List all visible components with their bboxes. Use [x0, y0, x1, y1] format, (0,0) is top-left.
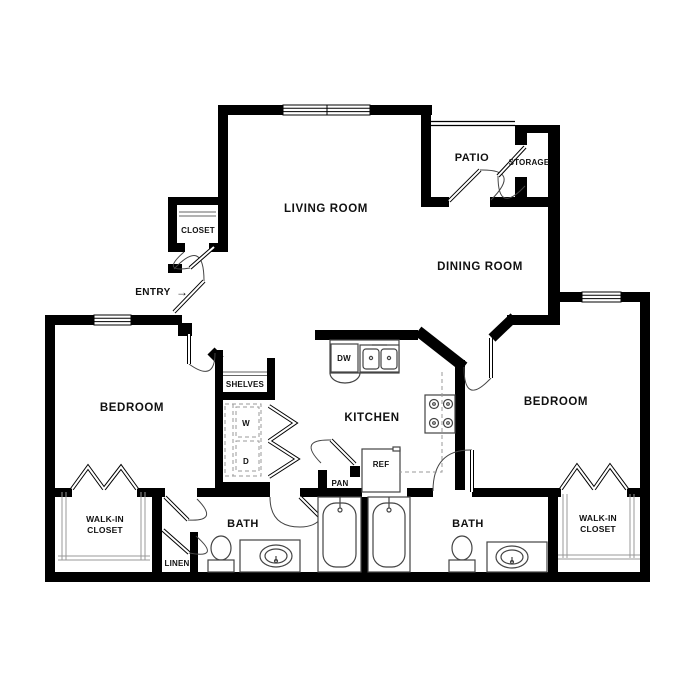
vanity-right [487, 542, 547, 572]
wall-hall-pan [300, 488, 318, 497]
shelves-label: SHELVES [226, 380, 265, 389]
wall-shelves-bottom [215, 392, 275, 400]
wall-patio-left [421, 105, 431, 207]
wall-patio-bottom-left [421, 197, 449, 207]
wall-storage-left-lower [515, 177, 527, 207]
wall-pantry-bottom [318, 488, 362, 497]
entry-closet-rod [179, 212, 216, 216]
dishwasher-label: DW [337, 354, 351, 363]
wall-linen-right [190, 532, 198, 572]
wall-hall-bath1 [197, 488, 265, 497]
patio-label: PATIO [455, 152, 489, 164]
storage-label: STORAGE [509, 158, 550, 167]
bath-right-label: BATH [452, 518, 484, 530]
kitchen-sink [360, 345, 399, 372]
wall-bedroom2-bottom-left [472, 488, 561, 497]
wall-storage-left-upper [515, 126, 527, 145]
patio-railing [431, 122, 515, 126]
dryer-label: D [243, 457, 249, 466]
refrigerator [362, 447, 400, 492]
bedroom-left-label: BEDROOM [100, 402, 164, 414]
storage-door [498, 147, 525, 198]
wall-entry-closet-left [168, 197, 177, 252]
shelves-lines [223, 372, 267, 376]
wall-bath2-closet2 [548, 488, 558, 572]
dining-room-label: DINING ROOM [437, 261, 523, 273]
stove [425, 395, 455, 433]
wall-closet-jamb-left [177, 243, 185, 252]
window-bedroom-left [94, 315, 131, 325]
wall-living-left [218, 105, 228, 200]
wall-living-top-left [218, 105, 285, 115]
entry-closet-label: CLOSET [181, 226, 215, 235]
toilet-right [449, 536, 475, 572]
floor-plan-canvas: LIVING ROOM DINING ROOM KITCHEN BEDROOM … [0, 0, 697, 697]
laundry-bifold [269, 406, 297, 477]
wall-right-outer [640, 292, 650, 582]
counter-round-end [330, 373, 360, 383]
bath-left-door-bedroom [165, 497, 207, 520]
pantry-label: PAN [332, 479, 349, 488]
entry-label: ENTRY [135, 287, 171, 298]
toilet-left [208, 536, 234, 572]
wall-kitchen-right [455, 360, 465, 490]
entry-arrow-icon: → [176, 285, 188, 299]
wall-bedroom1-top-right [131, 315, 182, 325]
wall-shelves-right [267, 358, 275, 395]
entry-label-group: ENTRY → [135, 285, 188, 299]
wall-bedroom2-top-left [556, 292, 582, 302]
bathtub-left [318, 497, 361, 572]
walk-in-closet-right-line1: WALK-IN [579, 513, 617, 523]
closet-right-bifold [561, 466, 627, 489]
wall-pantry-jamb [350, 466, 360, 477]
wall-bedroom2-diagonal [492, 317, 514, 338]
living-room-label: LIVING ROOM [284, 203, 368, 215]
wall-closet1-jamb-left [45, 488, 72, 497]
wall-bedroom1-top-left [45, 315, 94, 325]
window-living-room [283, 105, 370, 115]
linen-label: LINEN [165, 559, 190, 568]
bath-left-door-hall [270, 497, 321, 527]
wall-kitchen-bar [315, 330, 418, 340]
wall-laundry-left [215, 350, 223, 497]
bath-right-door [433, 450, 472, 492]
bath-fixtures [208, 497, 547, 572]
bedroom-right-label: BEDROOM [524, 396, 588, 408]
entry-door [174, 256, 204, 312]
walk-in-closet-left-line2: CLOSET [87, 525, 123, 535]
vanity-left [240, 540, 300, 572]
linen-door [163, 530, 207, 554]
closet-left-bifold [72, 467, 137, 489]
patio-door [449, 170, 504, 201]
walk-in-closet-left-line1: WALK-IN [86, 514, 124, 524]
wall-bath2-left-jamb [407, 488, 433, 497]
bedroom-right-door [464, 338, 491, 390]
walk-in-closet-right-line2: CLOSET [580, 524, 616, 534]
bathtub-right [368, 497, 410, 572]
kitchen-label: KITCHEN [344, 412, 399, 424]
wall-bottom [45, 572, 650, 582]
bath-left-label: BATH [227, 518, 259, 530]
washer-label: W [242, 419, 250, 428]
wall-left-outer [45, 315, 55, 582]
wall-tub-divider [361, 497, 368, 572]
floor-plan: LIVING ROOM DINING ROOM KITCHEN BEDROOM … [0, 0, 697, 697]
pantry-door [311, 440, 355, 464]
window-bedroom-right [582, 292, 621, 302]
refrigerator-label: REF [373, 460, 390, 469]
wall-closet1-right [152, 488, 162, 572]
